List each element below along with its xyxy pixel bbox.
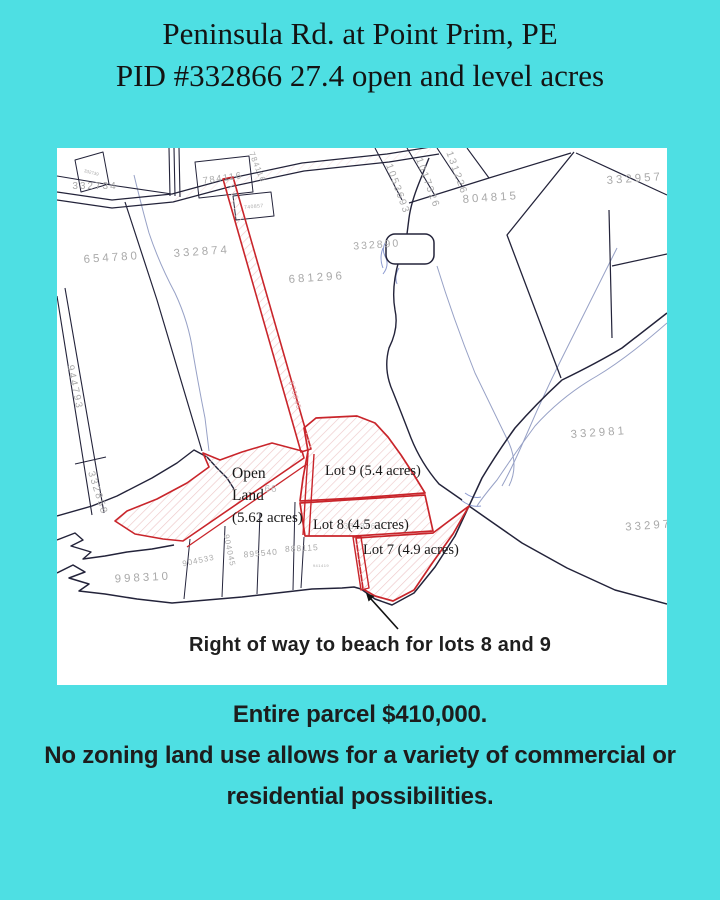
parcel-map: 3327343327397841167841167408576547803328… — [57, 148, 667, 685]
parcel-id-label: 66 — [264, 484, 277, 495]
parcel-id-label: 941419 — [313, 563, 330, 568]
parcel-id-label: 332874 — [173, 244, 230, 260]
parcel-map-svg: 3327343327397841167841167408576547803328… — [57, 148, 667, 685]
parcel-id-label: 332734 — [72, 181, 117, 192]
zoning-line-2: residential possibilities. — [0, 776, 720, 817]
parcel-id-label: 332981 — [570, 425, 627, 441]
parcel-id-label: 1017326 — [413, 156, 441, 210]
listing-flyer: Peninsula Rd. at Point Prim, PE PID #332… — [0, 0, 720, 900]
title-line1: Peninsula Rd. at Point Prim, PE — [0, 13, 720, 55]
parcel-id-label: 740857 — [244, 203, 264, 211]
lot-label: (5.62 acres) — [232, 510, 303, 526]
parcel-id-label: 904533 — [182, 553, 216, 569]
lot-label: Lot 7 (4.9 acres) — [363, 542, 459, 558]
parcel-id-label: 804815 — [462, 190, 519, 206]
parcel-id-label: 332739 — [83, 168, 99, 177]
parcel-id-label: 888115 — [285, 542, 319, 554]
parcel-id-label: 1053693 — [383, 162, 411, 216]
lot-label: Open — [232, 465, 266, 482]
parcel-id-label: 131226 — [443, 150, 469, 196]
parcel-id-label: 332957 — [606, 171, 663, 187]
parcel-id-label: 895540 — [243, 547, 278, 560]
parcel-id-label: 681296 — [288, 270, 345, 286]
zoning-line-1: No zoning land use allows for a variety … — [0, 735, 720, 776]
parcel-id-label: 654780 — [83, 250, 140, 266]
lot-label: Lot 8 (4.5 acres) — [313, 517, 409, 533]
listing-title: Peninsula Rd. at Point Prim, PE PID #332… — [0, 13, 720, 97]
price-line: Entire parcel $410,000. — [0, 694, 720, 735]
price-caption: Entire parcel $410,000. No zoning land u… — [0, 694, 720, 817]
beach-right-of-way-note: Right of way to beach for lots 8 and 9 — [175, 634, 565, 657]
title-line2: PID #332866 27.4 open and level acres — [0, 55, 720, 97]
parcel-id-label: 944793 — [64, 364, 84, 411]
lot-label: Land — [232, 487, 264, 504]
parcel-id-label: 998310 — [114, 571, 171, 586]
lot-label: Lot 9 (5.4 acres) — [325, 463, 421, 479]
parcel-id-label: 33297 — [625, 518, 667, 533]
